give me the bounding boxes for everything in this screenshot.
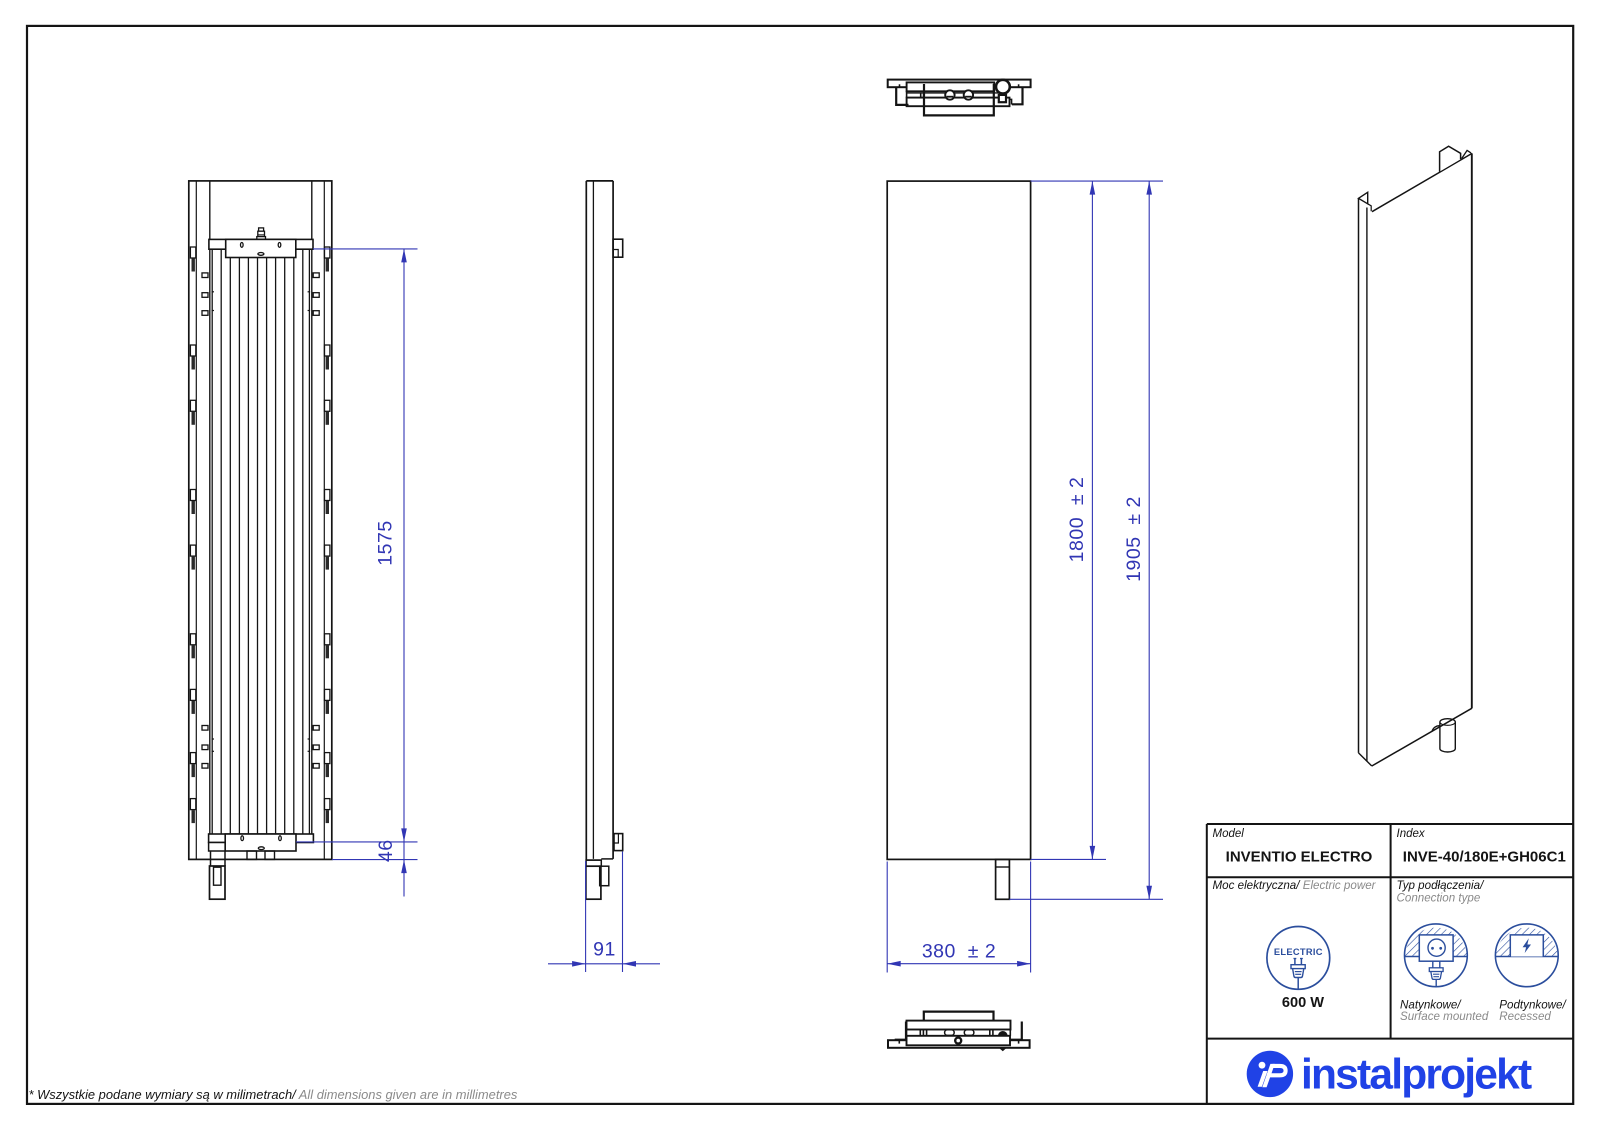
- svg-text:91: 91: [593, 939, 616, 961]
- svg-text:1575: 1575: [375, 520, 397, 565]
- svg-text:Surface mounted: Surface mounted: [1400, 1010, 1489, 1023]
- svg-text:Index: Index: [1397, 828, 1426, 840]
- svg-text:380 ± 2: 380 ± 2: [922, 940, 996, 962]
- svg-text:INVENTIO ELECTRO: INVENTIO ELECTRO: [1226, 849, 1373, 866]
- svg-text:46: 46: [375, 839, 397, 862]
- svg-text:600 W: 600 W: [1282, 995, 1324, 1011]
- svg-text:1905 ± 2: 1905 ± 2: [1123, 496, 1145, 582]
- svg-text:* Wszystkie podane wymiary są: * Wszystkie podane wymiary są w milimetr…: [29, 1087, 518, 1102]
- svg-text:Typ podłączenia/: Typ podłączenia/: [1397, 879, 1486, 892]
- svg-text:Recessed: Recessed: [1499, 1010, 1551, 1023]
- svg-text:1800 ± 2: 1800 ± 2: [1066, 477, 1088, 563]
- svg-text:INVE-40/180E+GH06C1: INVE-40/180E+GH06C1: [1403, 849, 1566, 866]
- svg-text:ELECTRIC: ELECTRIC: [1274, 947, 1323, 957]
- svg-text:instalprojekt: instalprojekt: [1301, 1052, 1532, 1099]
- svg-text:Model: Model: [1213, 828, 1245, 840]
- svg-text:Connection type: Connection type: [1397, 892, 1481, 905]
- svg-text:Moc elektryczna/ Electric powe: Moc elektryczna/ Electric power: [1213, 879, 1377, 892]
